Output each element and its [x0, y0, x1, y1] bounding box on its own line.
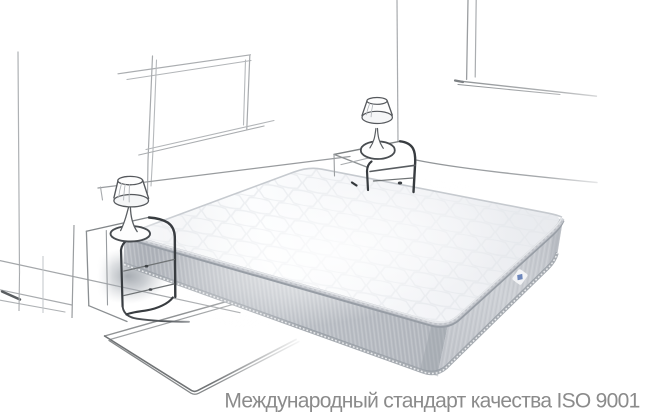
svg-text:Международный стандарт качеств: Международный стандарт качества ISO 9001	[224, 390, 639, 413]
